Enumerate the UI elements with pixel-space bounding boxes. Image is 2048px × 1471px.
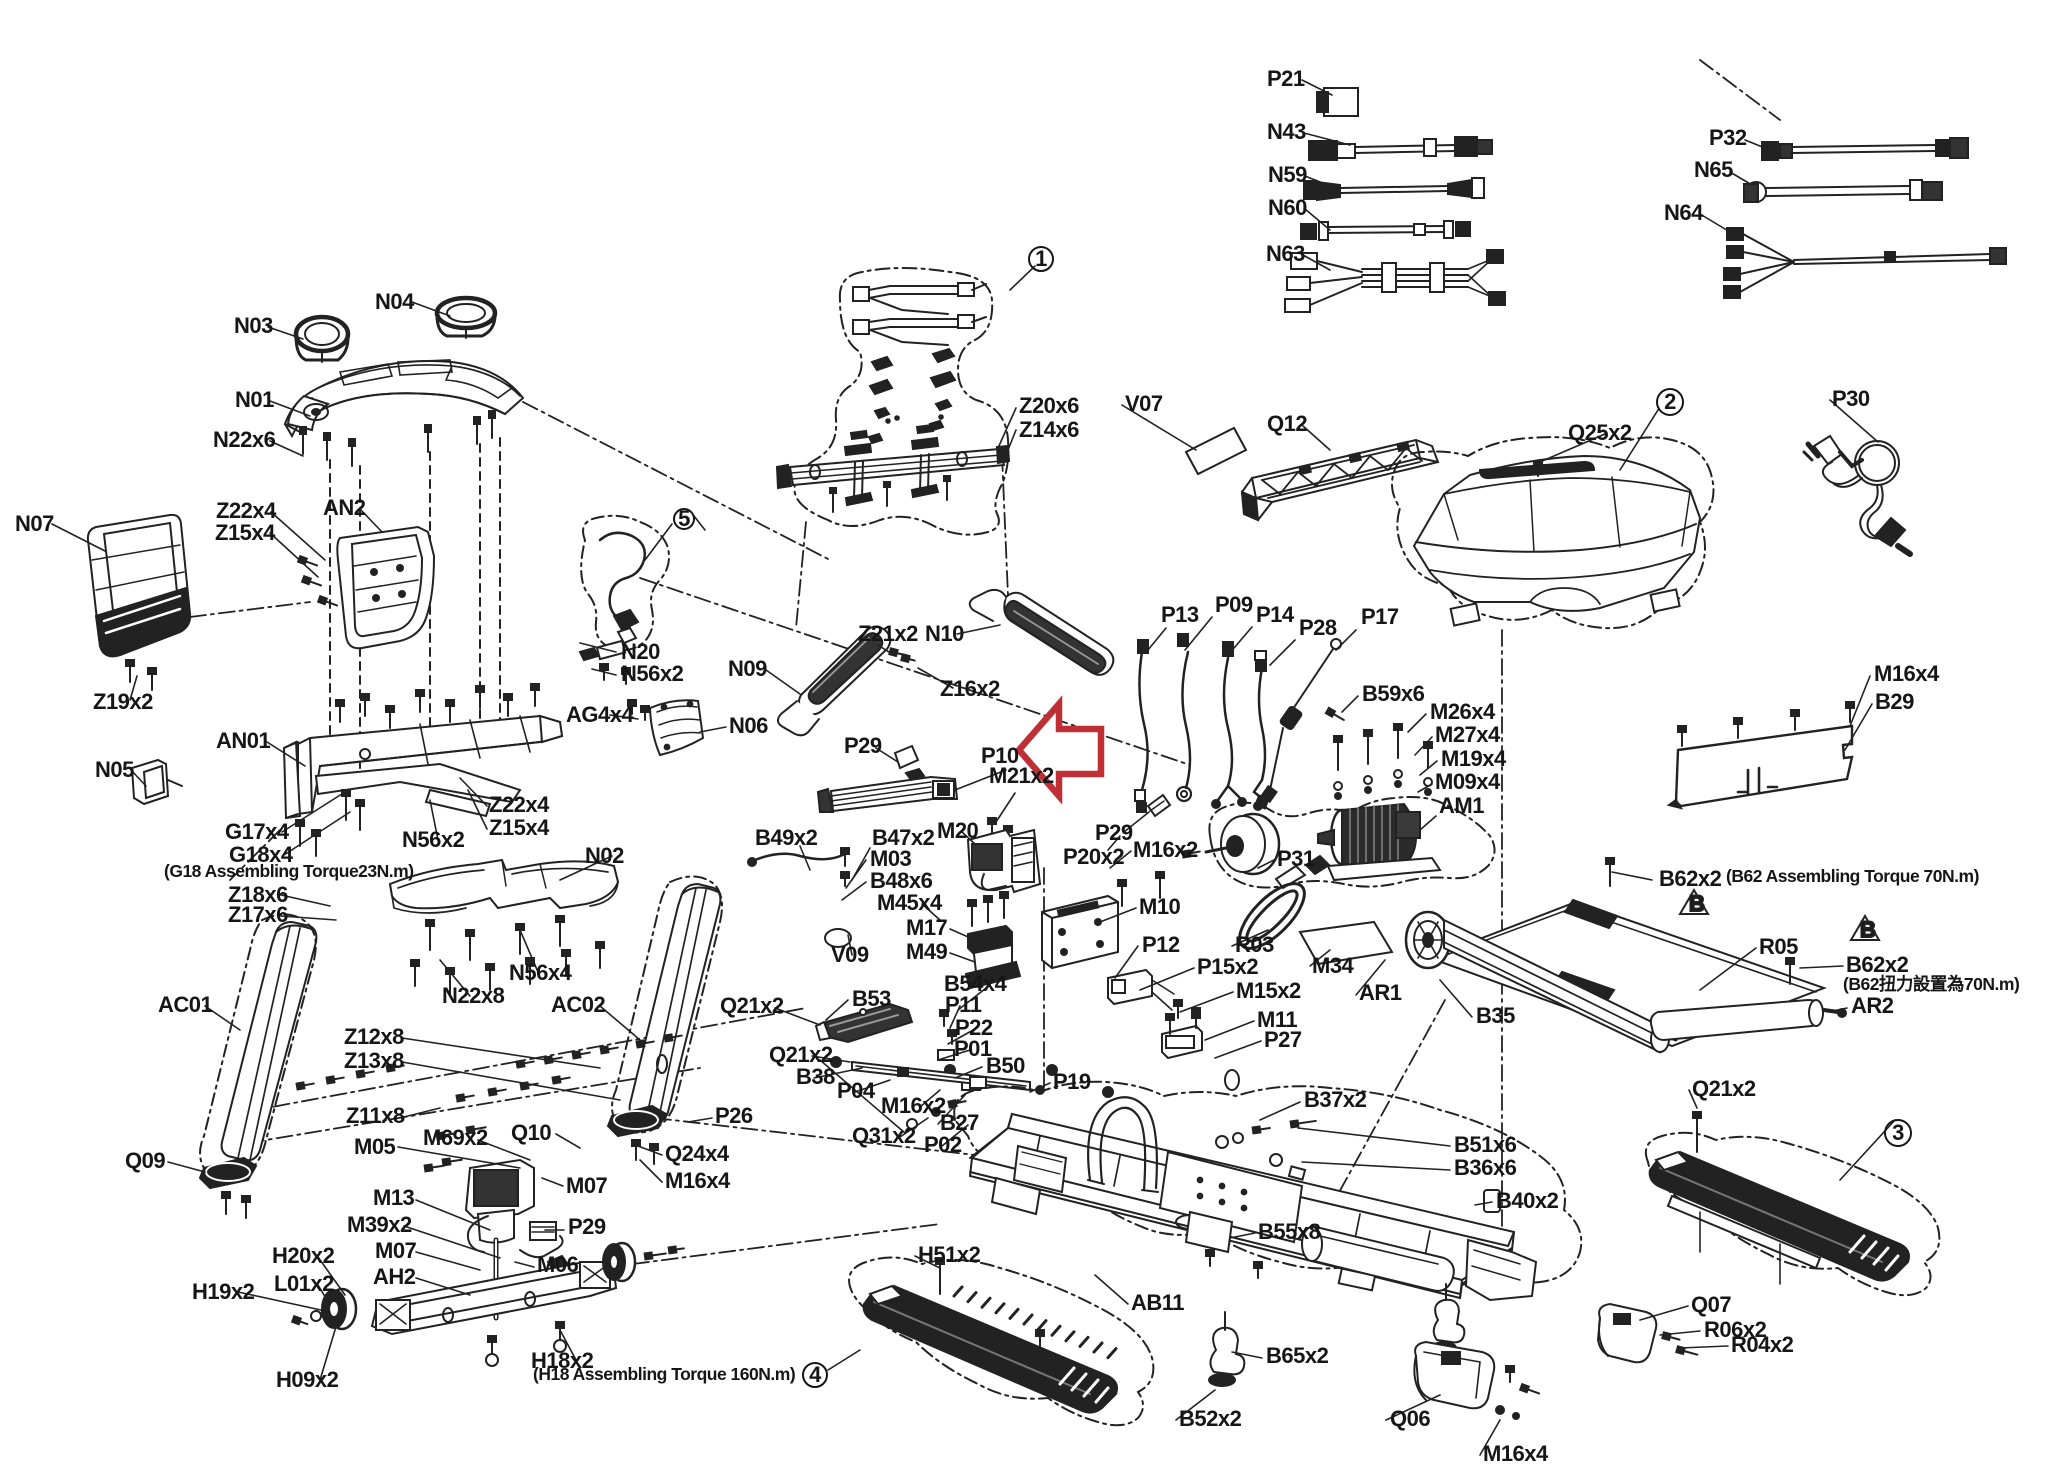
svg-text:M16x4: M16x4: [665, 1168, 731, 1193]
svg-text:M17: M17: [906, 915, 948, 940]
svg-text:M16x4: M16x4: [1874, 661, 1940, 686]
svg-text:P29: P29: [844, 733, 882, 758]
svg-text:B: B: [1860, 917, 1875, 942]
svg-text:B38: B38: [796, 1064, 835, 1089]
svg-text:N04: N04: [375, 289, 415, 314]
svg-text:B50: B50: [986, 1053, 1025, 1078]
svg-text:N06: N06: [729, 713, 768, 738]
svg-text:5: 5: [678, 506, 690, 531]
svg-text:AM1: AM1: [1439, 793, 1484, 818]
svg-text:Z16x2: Z16x2: [940, 676, 1000, 701]
svg-text:(B62扭力設置為70N.m): (B62扭力設置為70N.m): [1843, 974, 2019, 994]
svg-text:P29: P29: [568, 1214, 606, 1239]
svg-text:P09: P09: [1215, 592, 1253, 617]
svg-text:N65: N65: [1694, 157, 1733, 182]
svg-text:B49x2: B49x2: [755, 825, 818, 850]
svg-text:V07: V07: [1125, 391, 1163, 416]
svg-text:Z13x8: Z13x8: [344, 1048, 404, 1073]
svg-text:N56x4: N56x4: [509, 960, 573, 985]
svg-text:AB11: AB11: [1131, 1290, 1184, 1315]
svg-text:M49: M49: [906, 939, 948, 964]
svg-text:M19x4: M19x4: [1441, 746, 1507, 771]
svg-text:M26x4: M26x4: [1430, 699, 1496, 724]
svg-text:P13: P13: [1161, 602, 1199, 627]
svg-text:P12: P12: [1142, 932, 1180, 957]
svg-text:B36x6: B36x6: [1454, 1155, 1517, 1180]
svg-text:Q31x2: Q31x2: [852, 1123, 916, 1148]
svg-text:B35: B35: [1476, 1003, 1515, 1028]
svg-text:N59: N59: [1268, 162, 1307, 187]
svg-text:N63: N63: [1266, 241, 1305, 266]
svg-text:M27x4: M27x4: [1435, 722, 1501, 747]
svg-text:4: 4: [809, 1362, 822, 1387]
svg-text:P28: P28: [1299, 615, 1337, 640]
svg-text:Z17x6: Z17x6: [228, 902, 288, 927]
svg-text:P30: P30: [1832, 386, 1870, 411]
svg-text:M06: M06: [537, 1252, 579, 1277]
svg-text:3: 3: [1892, 1120, 1904, 1145]
svg-text:AR1: AR1: [1359, 980, 1402, 1005]
svg-text:R03: R03: [1235, 932, 1274, 957]
svg-text:N09: N09: [728, 656, 767, 681]
svg-text:N01: N01: [235, 387, 274, 412]
svg-text:Q07: Q07: [1691, 1292, 1731, 1317]
svg-text:P31: P31: [1277, 846, 1315, 871]
svg-text:N56x2: N56x2: [402, 827, 465, 852]
svg-text:B53: B53: [852, 986, 891, 1011]
svg-text:B65x2: B65x2: [1266, 1343, 1329, 1368]
svg-text:(H18 Assembling Torque 160N.m): (H18 Assembling Torque 160N.m): [533, 1364, 795, 1384]
svg-text:M34: M34: [1312, 953, 1355, 978]
svg-text:L01x2: L01x2: [274, 1271, 334, 1296]
svg-text:N43: N43: [1267, 119, 1306, 144]
svg-text:P20x2: P20x2: [1063, 844, 1124, 869]
svg-text:N10: N10: [925, 621, 964, 646]
svg-text:2: 2: [1664, 389, 1676, 414]
svg-text:B37x2: B37x2: [1304, 1087, 1367, 1112]
svg-text:B52x2: B52x2: [1179, 1406, 1242, 1431]
svg-text:M21x2: M21x2: [989, 763, 1054, 788]
svg-text:AC01: AC01: [158, 992, 213, 1017]
svg-text:Z21x2: Z21x2: [858, 621, 918, 646]
svg-text:P27: P27: [1264, 1027, 1302, 1052]
svg-text:P11: P11: [945, 992, 982, 1017]
svg-text:Z12x8: Z12x8: [344, 1024, 404, 1049]
svg-text:P04: P04: [837, 1078, 876, 1103]
svg-text:Q10: Q10: [511, 1120, 551, 1145]
svg-text:B29: B29: [1875, 689, 1914, 714]
svg-text:M16x4: M16x4: [1483, 1441, 1549, 1466]
svg-text:M16x2: M16x2: [1133, 837, 1198, 862]
svg-text:M13: M13: [373, 1185, 415, 1210]
svg-text:Q12: Q12: [1267, 411, 1307, 436]
svg-text:Q06: Q06: [1390, 1406, 1430, 1431]
svg-text:B40x2: B40x2: [1496, 1188, 1559, 1213]
svg-text:N22x8: N22x8: [442, 983, 505, 1008]
svg-text:M09x4: M09x4: [1435, 769, 1501, 794]
svg-text:H20x2: H20x2: [272, 1243, 335, 1268]
svg-text:M69x2: M69x2: [423, 1125, 488, 1150]
svg-text:M10: M10: [1139, 894, 1181, 919]
svg-text:M07: M07: [566, 1173, 608, 1198]
svg-text:Z14x6: Z14x6: [1019, 417, 1079, 442]
svg-text:H51x2: H51x2: [918, 1242, 981, 1267]
svg-text:B55x8: B55x8: [1258, 1219, 1321, 1244]
svg-text:AC02: AC02: [551, 992, 606, 1017]
svg-text:Z22x4: Z22x4: [489, 792, 550, 817]
svg-text:V09: V09: [831, 942, 869, 967]
svg-text:B59x6: B59x6: [1362, 681, 1425, 706]
svg-text:M16x2: M16x2: [881, 1093, 946, 1118]
svg-text:N64: N64: [1664, 200, 1704, 225]
svg-text:P21: P21: [1267, 66, 1305, 91]
svg-text:N07: N07: [15, 511, 54, 536]
svg-text:(G18 Assembling Torque23N.m): (G18 Assembling Torque23N.m): [164, 861, 414, 881]
svg-text:B51x6: B51x6: [1454, 1132, 1517, 1157]
svg-text:G17x4: G17x4: [225, 819, 290, 844]
svg-text:M39x2: M39x2: [347, 1212, 412, 1237]
svg-text:P17: P17: [1361, 604, 1399, 629]
svg-text:AG4x4: AG4x4: [566, 702, 634, 727]
svg-text:1: 1: [1035, 246, 1047, 271]
svg-text:P15x2: P15x2: [1197, 954, 1258, 979]
svg-text:Z15x4: Z15x4: [489, 815, 550, 840]
svg-text:N60: N60: [1268, 195, 1307, 220]
svg-text:Q25x2: Q25x2: [1568, 420, 1632, 445]
svg-text:Z15x4: Z15x4: [215, 520, 276, 545]
svg-text:B62x2: B62x2: [1659, 866, 1722, 891]
svg-text:P14: P14: [1256, 602, 1295, 627]
svg-text:N22x6: N22x6: [213, 427, 276, 452]
svg-text:H09x2: H09x2: [276, 1367, 339, 1392]
svg-text:Q09: Q09: [125, 1148, 165, 1173]
svg-text:P29: P29: [1095, 820, 1133, 845]
svg-text:M15x2: M15x2: [1236, 978, 1301, 1003]
svg-text:P32: P32: [1709, 125, 1747, 150]
svg-text:M05: M05: [354, 1134, 396, 1159]
svg-text:AN01: AN01: [216, 728, 271, 753]
svg-text:N56x2: N56x2: [621, 661, 684, 686]
svg-text:Q21x2: Q21x2: [1692, 1076, 1756, 1101]
svg-text:(B62 Assembling Torque 70N.m): (B62 Assembling Torque 70N.m): [1726, 866, 1979, 886]
svg-text:Z19x2: Z19x2: [93, 689, 153, 714]
svg-text:N05: N05: [95, 757, 134, 782]
svg-text:H19x2: H19x2: [192, 1279, 255, 1304]
svg-text:M20: M20: [937, 818, 979, 843]
svg-text:AN2: AN2: [323, 495, 366, 520]
svg-text:P19: P19: [1053, 1069, 1091, 1094]
svg-text:Z11x8: Z11x8: [346, 1103, 405, 1128]
svg-text:Q21x2: Q21x2: [720, 993, 784, 1018]
svg-text:R04x2: R04x2: [1731, 1332, 1794, 1357]
svg-text:M07: M07: [375, 1238, 417, 1263]
svg-text:N02: N02: [585, 843, 624, 868]
svg-text:AR2: AR2: [1851, 993, 1894, 1018]
svg-text:Q24x4: Q24x4: [665, 1141, 730, 1166]
svg-text:Z20x6: Z20x6: [1019, 393, 1079, 418]
svg-text:M45x4: M45x4: [877, 890, 943, 915]
svg-text:P02: P02: [924, 1132, 962, 1157]
svg-text:P26: P26: [715, 1103, 753, 1128]
svg-text:N03: N03: [234, 313, 273, 338]
svg-text:R05: R05: [1759, 934, 1798, 959]
svg-text:B: B: [1689, 891, 1704, 916]
svg-text:AH2: AH2: [373, 1264, 416, 1289]
